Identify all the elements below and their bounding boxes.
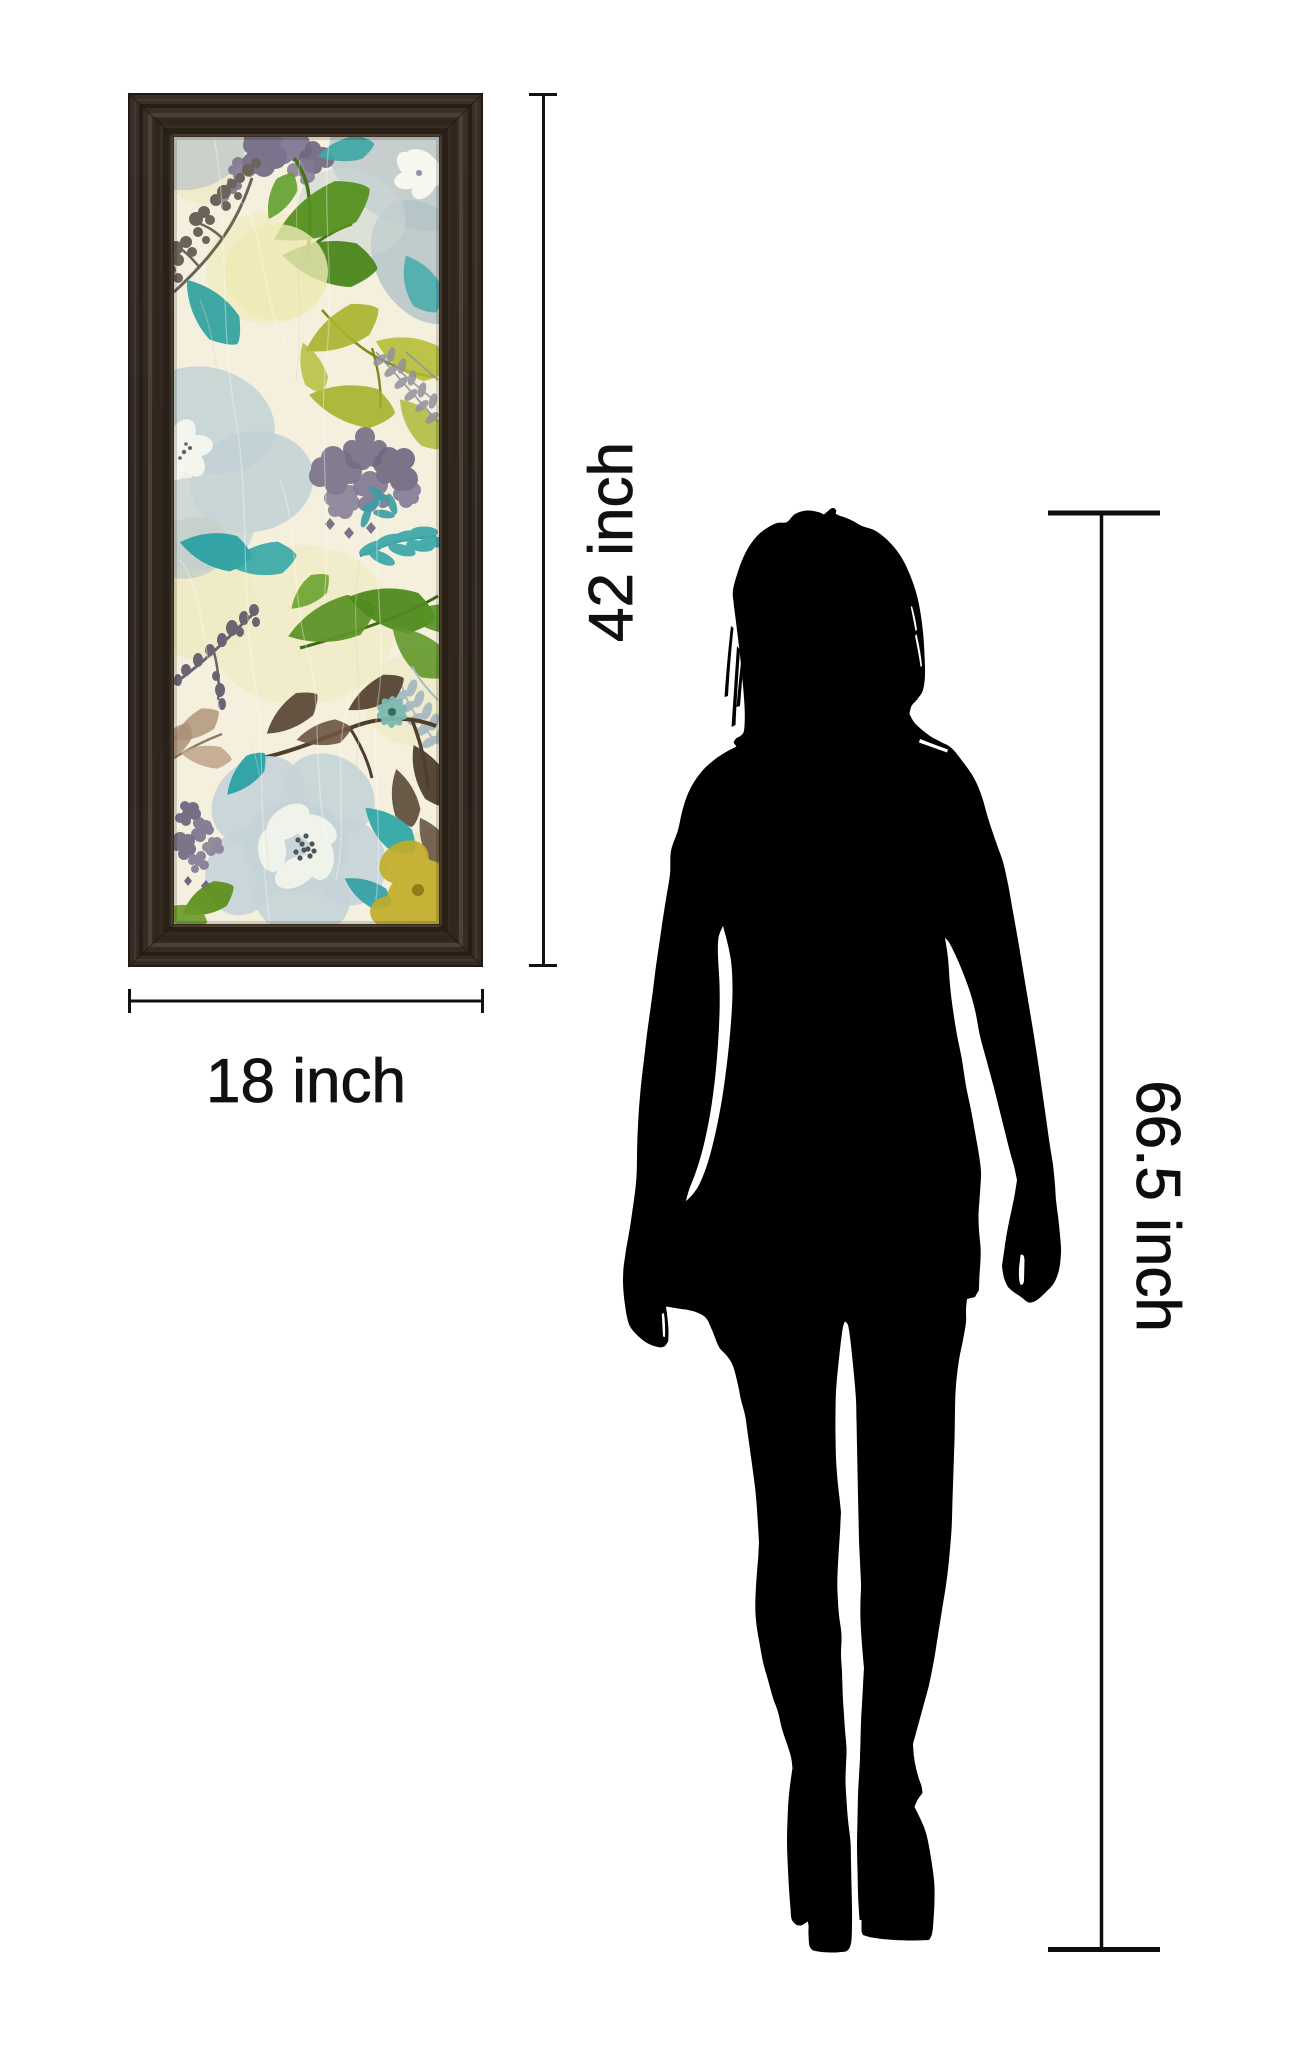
svg-text:66.5 inch: 66.5 inch	[1123, 1080, 1192, 1332]
svg-text:18 inch: 18 inch	[206, 1047, 406, 1116]
svg-text:42 inch: 42 inch	[577, 442, 646, 642]
